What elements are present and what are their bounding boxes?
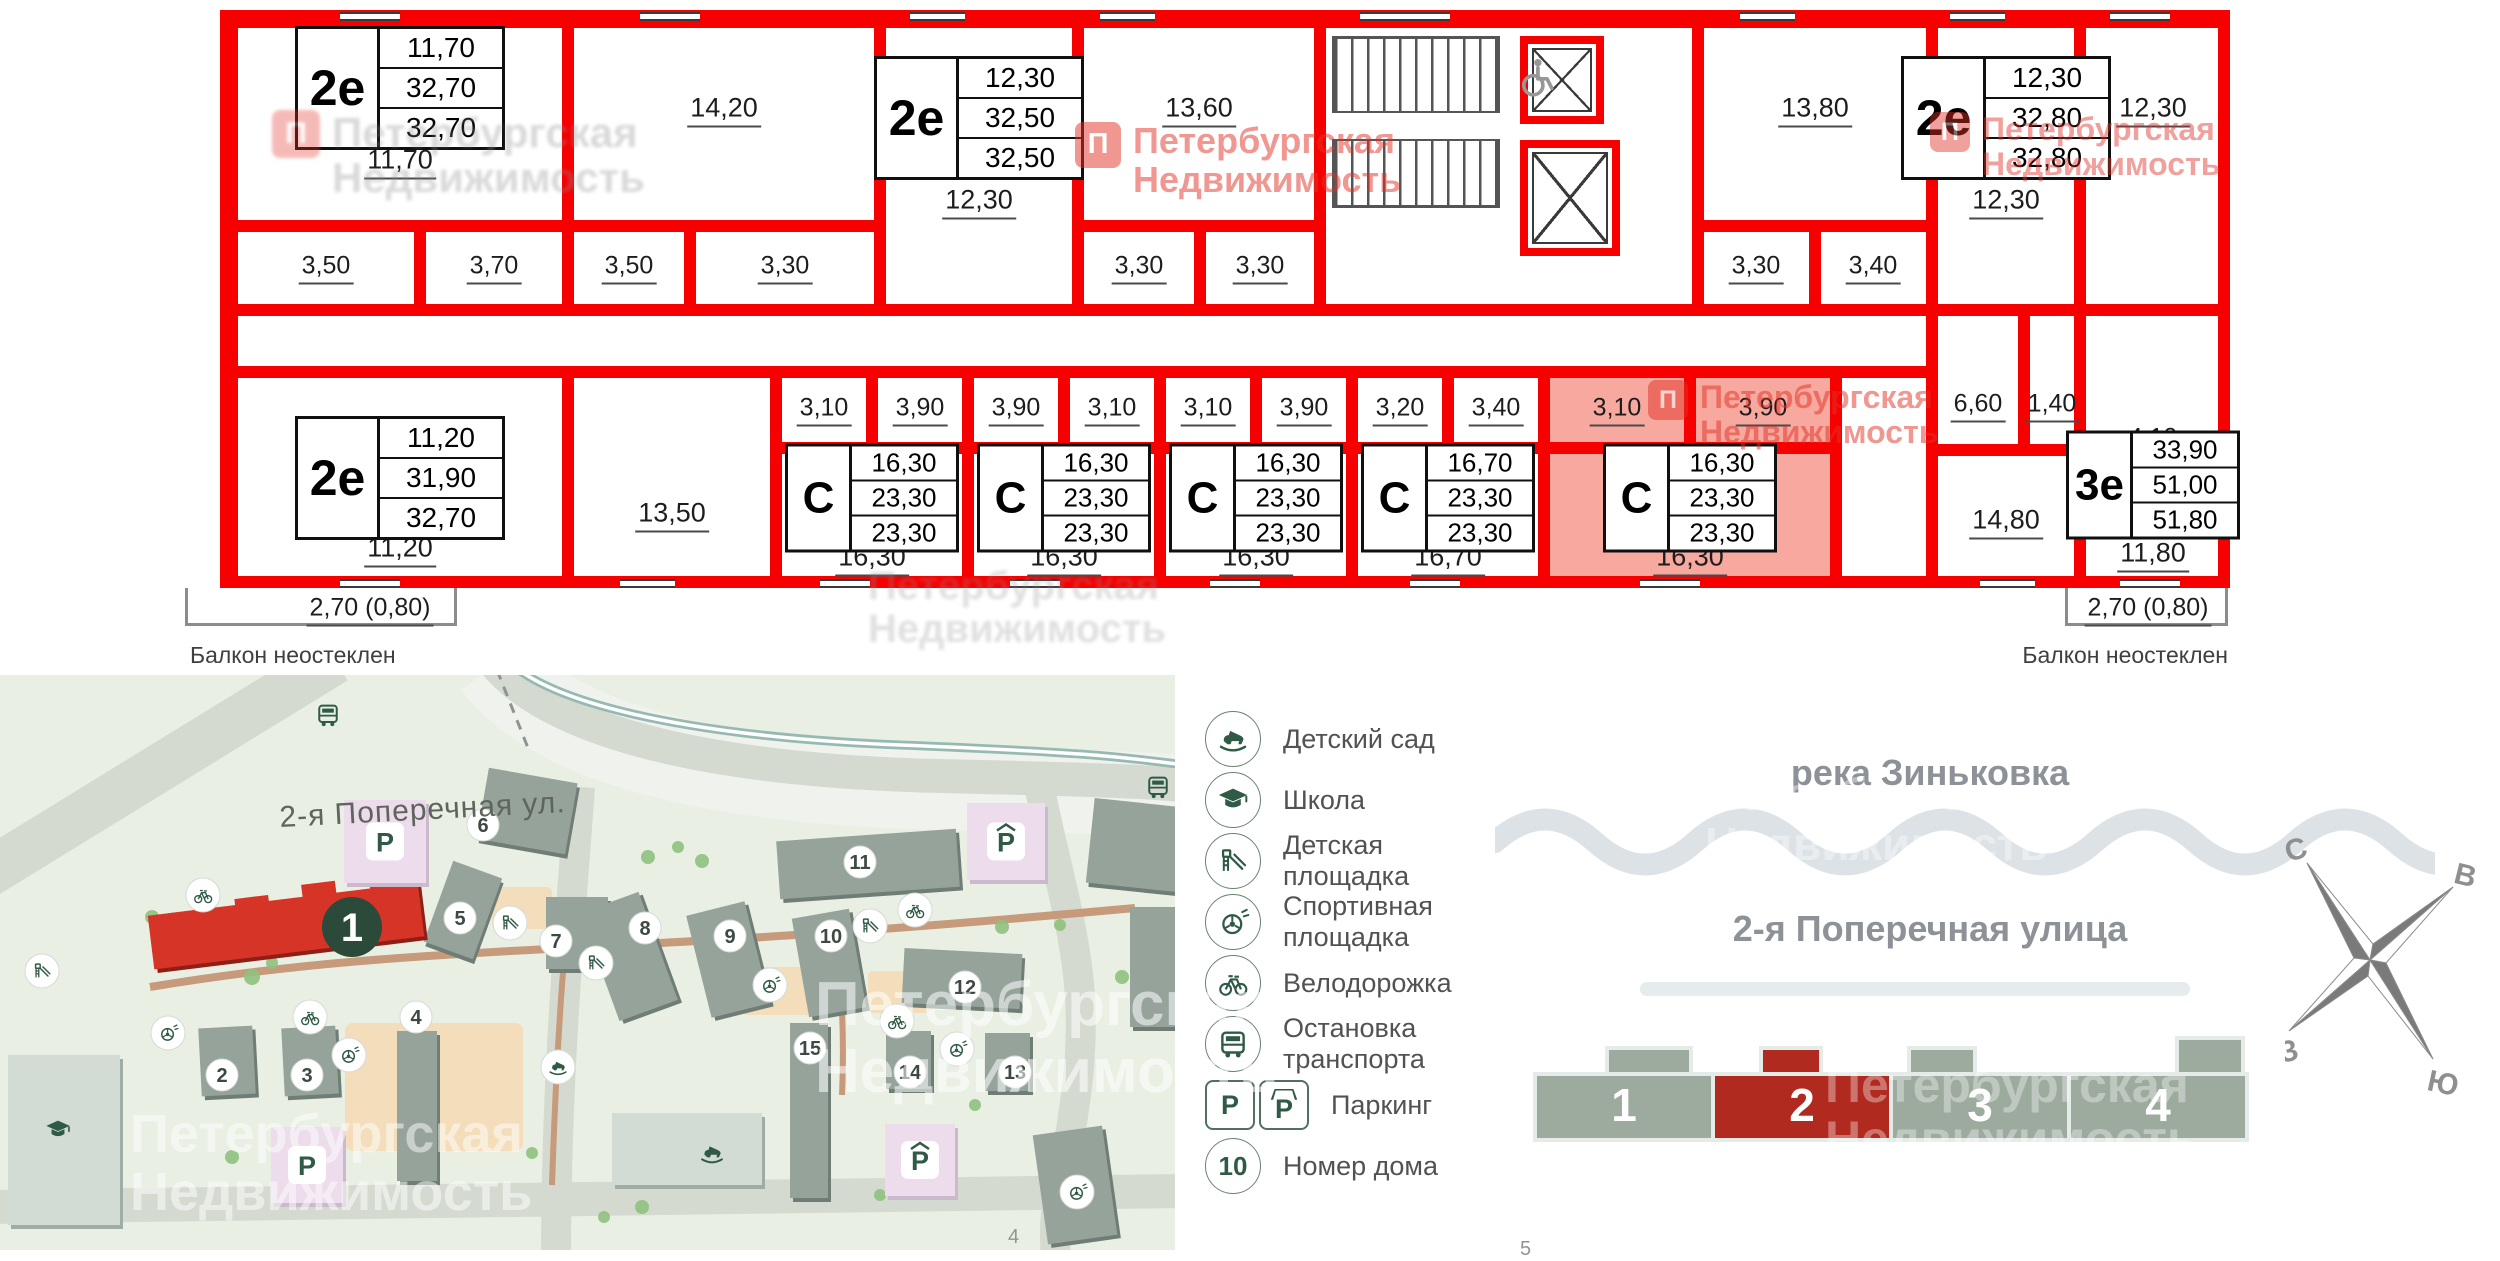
window [1740, 12, 1795, 21]
svg-text:4: 4 [410, 1007, 422, 1029]
area-label: 11,80 [2117, 538, 2189, 573]
corridor [232, 310, 1932, 372]
apartment-card[interactable]: 2е11,2031,9032,70 [295, 416, 505, 540]
svg-text:P: P [997, 828, 1015, 858]
area-label: 13,50 [635, 498, 709, 533]
section-1[interactable]: 1 [1533, 1072, 1715, 1142]
compass-east: В [2451, 857, 2475, 894]
legend-item-bike: Велодорожка [1205, 956, 1505, 1010]
area-label: 3,50 [299, 252, 354, 285]
area-label: 3,30 [1233, 252, 1288, 285]
window [620, 579, 675, 588]
svg-text:2: 2 [216, 1065, 227, 1087]
svg-text:10: 10 [820, 926, 842, 948]
apartment-area-value: 31,90 [380, 459, 502, 499]
window [1980, 579, 2035, 588]
apartment-type: С [788, 447, 852, 550]
apartment-area-value: 23,30 [1670, 517, 1774, 550]
apartment-area-value: 33,90 [2133, 434, 2237, 469]
section-number: 3 [1893, 1078, 2067, 1132]
apartment-type: 2е [298, 29, 380, 147]
area-label: 3,40 [1846, 252, 1901, 285]
svg-text:1: 1 [341, 906, 363, 950]
area-label: 3,30 [1112, 252, 1167, 285]
compass-south: Ю [2424, 1064, 2461, 1100]
compass-rose: С В З Ю [2285, 835, 2475, 1100]
apartment-area-value: 16,30 [1044, 447, 1148, 482]
svg-text:7: 7 [550, 931, 561, 953]
apartment-type: С [1606, 447, 1670, 550]
area-label: 3,10 [1181, 394, 1236, 427]
svg-text:15: 15 [799, 1038, 821, 1060]
staircase [1332, 36, 1500, 208]
wheelchair-icon [1515, 55, 1559, 99]
apartment-area-value: 23,30 [852, 482, 956, 517]
apartment-area-value: 23,30 [1044, 482, 1148, 517]
svg-text:5: 5 [454, 908, 465, 930]
apartment-area-value: 11,20 [380, 419, 502, 459]
area-label: 3,90 [893, 394, 948, 427]
balcony-right-size: 2,70 (0,80) [2085, 594, 2212, 627]
apartment-area-value: 12,30 [959, 59, 1081, 99]
area-label: 13,60 [1162, 93, 1236, 128]
elevator-2 [1520, 140, 1620, 256]
apartment-area-value: 32,70 [380, 109, 502, 147]
apartment-area-value: 23,30 [1044, 517, 1148, 550]
apartment-area-value: 23,30 [1236, 517, 1340, 550]
apartment-area-value: 32,70 [380, 69, 502, 109]
apartment-card[interactable]: 3е33,9051,0051,80 [2066, 431, 2240, 540]
section-4[interactable]: 4 [2067, 1072, 2249, 1142]
legend-label: Детский сад [1283, 724, 1435, 755]
apartment-card[interactable]: 2е12,3032,8032,80 [1901, 56, 2111, 180]
street-title: 2-я Поперечная улица [1590, 908, 2270, 950]
svg-text:P: P [376, 828, 394, 858]
apartment-area-value: 23,30 [852, 517, 956, 550]
apartment-type: 3е [2069, 434, 2133, 537]
area-label: 13,80 [1778, 93, 1852, 128]
river-title: река Зиньковка [1590, 752, 2270, 794]
area-label: 3,90 [1277, 394, 1332, 427]
area-label: 3,50 [602, 252, 657, 285]
bike-icon [1205, 955, 1261, 1011]
apartment-area-value: 32,50 [959, 139, 1081, 177]
legend-item-cap: Школа [1205, 773, 1505, 827]
apartment-area-value: 23,30 [1428, 517, 1532, 550]
kitchen-6-60 [1932, 310, 2024, 450]
apartment-type: 2е [877, 59, 959, 177]
apartment-type: С [980, 447, 1044, 550]
horse-icon [1205, 711, 1261, 767]
legend-label: Остановка транспорта [1283, 1013, 1505, 1075]
outer-wall [220, 10, 2230, 22]
apartment-area-value: 16,30 [1670, 447, 1774, 482]
slide-icon [1205, 833, 1261, 889]
apartment-card[interactable]: С16,3023,3023,30 [1169, 444, 1343, 553]
area-label: 3,10 [797, 394, 852, 427]
apartment-area-value: 23,30 [1670, 482, 1774, 517]
area-label: 3,10 [1085, 394, 1140, 427]
window [640, 12, 700, 21]
area-label: 3,20 [1373, 394, 1428, 427]
apartment-area-value: 51,80 [2133, 504, 2237, 537]
svg-text:12: 12 [954, 977, 976, 999]
compass-west: З [2285, 1033, 2302, 1070]
area-label: 3,90 [989, 394, 1044, 427]
section-number: 4 [2071, 1078, 2245, 1132]
svg-text:11: 11 [849, 852, 870, 874]
apartment-area-value: 23,30 [1236, 482, 1340, 517]
area-label: 1,40 [2025, 390, 2080, 423]
wc-1-40 [2024, 310, 2080, 450]
window [1640, 579, 1700, 588]
area-label: 3,70 [467, 252, 522, 285]
area-label: 3,10 [1590, 394, 1645, 427]
legend-item-pp: PPПаркинг [1205, 1078, 1505, 1132]
apartment-card[interactable]: 2е11,7032,7032,70 [295, 26, 505, 150]
area-label: 6,60 [1951, 390, 2006, 423]
site-map: 1 PPPP 23456789101112131415 2-я Поперечн… [0, 675, 1175, 1250]
cap-icon [1205, 772, 1261, 828]
apartment-card[interactable]: 2е12,3032,5032,50 [874, 56, 1084, 180]
legend-item-bus: Остановка транспорта [1205, 1017, 1505, 1071]
window [910, 12, 965, 21]
window [1100, 12, 1155, 21]
legend-label: Велодорожка [1283, 968, 1452, 999]
legend-item-ball: Спортивная площадка [1205, 895, 1505, 949]
section-number: 2 [1715, 1078, 1889, 1132]
apartment-area-value: 16,30 [852, 447, 956, 482]
svg-text:13: 13 [1004, 1062, 1026, 1084]
building-sections: 1234 [1505, 1042, 2285, 1152]
house-number-icon: 10 [1205, 1138, 1261, 1194]
legend-label: Школа [1283, 785, 1365, 816]
legend-label: Номер дома [1283, 1151, 1438, 1182]
legend-item-horse: Детский сад [1205, 712, 1505, 766]
apartment-type: С [1172, 447, 1236, 550]
map-legend: Детский садШколаДетская площадкаСпортивн… [1205, 712, 1505, 1200]
window [1210, 579, 1260, 588]
apartment-area-value: 32,50 [959, 99, 1081, 139]
apartment-type: 2е [1904, 59, 1986, 177]
room-13-50 [568, 372, 776, 584]
balcony-left-size: 2,70 (0,80) [307, 594, 434, 627]
apartment-area-value: 12,30 [1986, 59, 2108, 99]
legend-label: Паркинг [1331, 1090, 1432, 1121]
svg-text:9: 9 [724, 926, 735, 948]
window [340, 12, 400, 21]
apartment-area-value: 16,70 [1428, 447, 1532, 482]
balcony-left-note: Балкон неостеклен [190, 642, 396, 669]
apartment-type: С [1364, 447, 1428, 550]
apartment-card[interactable]: С16,3023,3023,30 [1603, 444, 1777, 553]
window [1950, 12, 2005, 21]
window [1010, 579, 1060, 588]
apartment-area-value: 32,70 [380, 499, 502, 537]
area-label: 14,20 [687, 93, 761, 128]
section-2[interactable]: 2 [1711, 1072, 1893, 1142]
outer-wall [220, 10, 232, 588]
balcony-right-note: Балкон неостеклен [1920, 642, 2228, 669]
legend-item-num: 10Номер дома [1205, 1139, 1505, 1193]
legend-item-slide: Детская площадка [1205, 834, 1505, 888]
apartment-card[interactable]: С16,3023,3023,30 [785, 444, 959, 553]
section-number: 1 [1537, 1078, 1711, 1132]
svg-text:3: 3 [301, 1065, 312, 1087]
apartment-area-value: 11,70 [380, 29, 502, 69]
window [2110, 12, 2170, 21]
apartment-area-value: 51,00 [2133, 469, 2237, 504]
corridor-right [1836, 372, 1932, 584]
svg-text:8: 8 [639, 918, 650, 940]
apartment-type: 2е [298, 419, 380, 537]
window [820, 579, 870, 588]
apartment-area-value: 32,80 [1986, 139, 2108, 177]
area-label: 14,80 [1969, 505, 2043, 540]
apartment-card[interactable]: С16,3023,3023,30 [977, 444, 1151, 553]
apartment-area-value: 32,80 [1986, 99, 2108, 139]
window [2120, 579, 2180, 588]
svg-text:14: 14 [899, 1062, 922, 1084]
apartment-area-value: 23,30 [1428, 482, 1532, 517]
street-line [1640, 982, 2190, 996]
floor-plan: 2,70 (0,80) Балкон неостеклен 2,70 (0,80… [220, 10, 2230, 590]
area-label: 12,30 [942, 185, 1016, 220]
legend-label: Спортивная площадка [1283, 891, 1505, 953]
apartment-area-value: 16,30 [1236, 447, 1340, 482]
window [1360, 12, 1450, 21]
svg-text:P: P [298, 1151, 316, 1181]
window [1410, 579, 1460, 588]
map-sheet-number: 4 [1008, 1226, 1019, 1248]
area-label: 3,30 [758, 252, 813, 285]
apartment-card[interactable]: С16,7023,3023,30 [1361, 444, 1535, 553]
parking-icons: PP [1205, 1080, 1309, 1130]
legend-label: Детская площадка [1283, 830, 1505, 892]
area-label: 3,30 [1729, 252, 1784, 285]
area-label: 3,90 [1736, 394, 1791, 427]
bus-icon [1205, 1016, 1261, 1072]
area-label: 3,40 [1469, 394, 1524, 427]
ball-icon [1205, 894, 1261, 950]
area-label: 12,30 [2116, 93, 2190, 128]
area-label: 12,30 [1969, 185, 2043, 220]
section-3[interactable]: 3 [1889, 1072, 2071, 1142]
window [340, 579, 400, 588]
svg-text:P: P [911, 1146, 929, 1176]
